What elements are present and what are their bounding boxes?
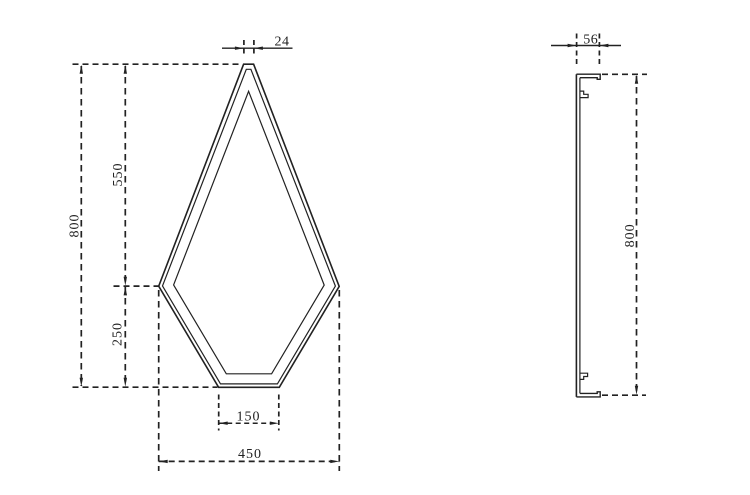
svg-text:56: 56: [583, 32, 598, 47]
svg-text:800: 800: [67, 214, 82, 238]
svg-text:250: 250: [111, 322, 126, 346]
svg-text:24: 24: [275, 35, 290, 50]
svg-text:150: 150: [237, 410, 261, 425]
svg-text:800: 800: [623, 223, 638, 247]
svg-text:450: 450: [238, 447, 262, 462]
svg-text:550: 550: [111, 163, 126, 187]
